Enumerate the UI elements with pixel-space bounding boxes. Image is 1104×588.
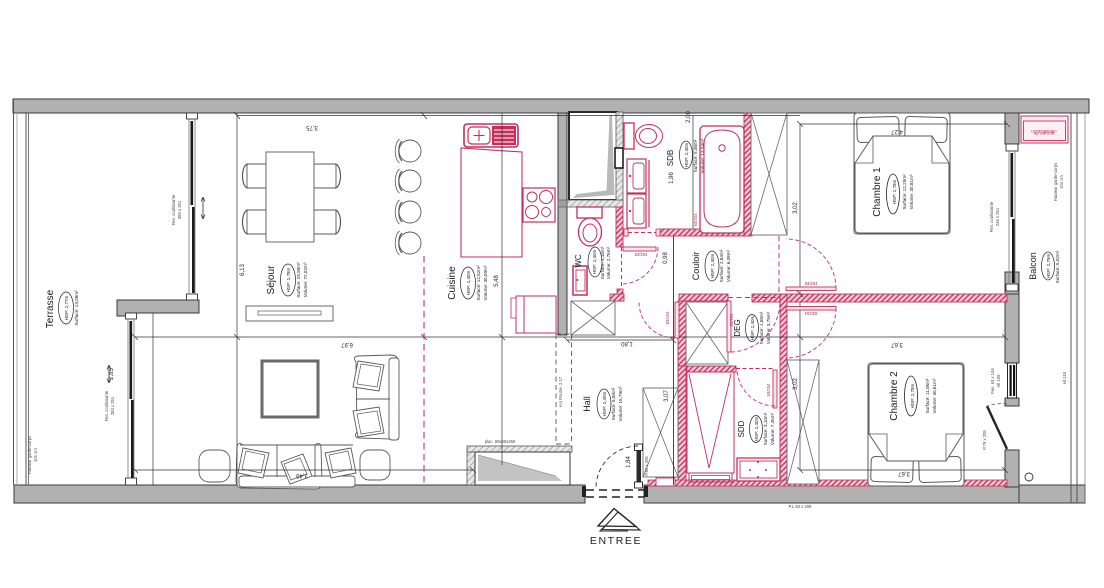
svg-text:P.79 x 205: P.79 x 205	[982, 430, 987, 450]
svg-text:83/204: 83/204	[805, 281, 818, 286]
svg-text:366 x 251: 366 x 251	[177, 200, 182, 219]
svg-text:Volume: 7,45m³: Volume: 7,45m³	[770, 412, 775, 445]
svg-text:WC: WC	[574, 254, 583, 268]
svg-text:HSP: 2,77m: HSP: 2,77m	[64, 295, 69, 320]
svg-text:Cuisine: Cuisine	[447, 266, 458, 300]
svg-text:ENTREE: ENTREE	[590, 535, 642, 547]
svg-text:2,00: 2,00	[686, 111, 692, 123]
svg-text:HSP: 2,40m: HSP: 2,40m	[466, 270, 471, 295]
svg-text:HSP: 2,40m: HSP: 2,40m	[710, 253, 715, 278]
svg-text:63/204: 63/204	[766, 383, 771, 396]
svg-text:All 105: All 105	[996, 374, 1001, 387]
svg-text:Hauteur garde-corps: Hauteur garde-corps	[27, 436, 32, 474]
svg-text:Surface: 25,90m²: Surface: 25,90m²	[296, 262, 301, 298]
svg-text:3,67: 3,67	[891, 341, 903, 347]
svg-text:Volume: 15,79m³: Volume: 15,79m³	[618, 386, 623, 421]
svg-text:Fen. coulissante: Fen. coulissante	[104, 390, 109, 421]
svg-text:104 cm: 104 cm	[1059, 175, 1064, 189]
svg-text:3,02: 3,02	[793, 202, 799, 214]
svg-text:DEG: DEG	[733, 319, 742, 336]
svg-text:4,27: 4,27	[891, 128, 903, 134]
svg-text:Volume: 2,76m³: Volume: 2,76m³	[606, 246, 611, 279]
svg-text:Balcon: Balcon	[1028, 252, 1038, 280]
svg-text:HSP: 2,79m: HSP: 2,79m	[1046, 253, 1051, 278]
svg-text:H.s Poutre. 2,17: H.s Poutre. 2,17	[558, 376, 563, 407]
svg-text:83/204: 83/204	[729, 313, 734, 326]
svg-text:Surface: 12,52m²: Surface: 12,52m²	[476, 265, 481, 301]
svg-text:Chambre 2: Chambre 2	[889, 371, 900, 421]
svg-text:3,75: 3,75	[306, 124, 318, 130]
svg-text:Volume: 6,08m³: Volume: 6,08m³	[726, 249, 731, 282]
svg-text:SDD: SDD	[737, 420, 746, 437]
svg-text:HSP: 2,40m: HSP: 2,40m	[592, 249, 597, 274]
svg-text:Volume: 13,04m³: Volume: 13,04m³	[700, 138, 705, 173]
svg-text:2,85: 2,85	[109, 368, 115, 380]
svg-text:groupe de: groupe de	[1033, 131, 1054, 136]
svg-text:83/204: 83/204	[804, 311, 817, 316]
svg-text:Surface: 3,10m²: Surface: 3,10m²	[763, 412, 768, 445]
svg-text:Volume: 30,09m³: Volume: 30,09m³	[483, 265, 488, 300]
svg-text:3,49: 3,49	[296, 472, 308, 478]
svg-text:6,13: 6,13	[240, 264, 246, 276]
svg-text:Surface: 1,15m²: Surface: 1,15m²	[600, 246, 605, 279]
svg-text:Surface: 11,06m²: Surface: 11,06m²	[925, 378, 930, 413]
svg-text:63/204: 63/204	[693, 213, 698, 226]
svg-text:6,97: 6,97	[341, 341, 353, 347]
svg-text:Hall: Hall	[582, 396, 592, 412]
svg-text:Séjour: Séjour	[266, 265, 277, 295]
svg-text:Surface: 13,06m²: Surface: 13,06m²	[74, 290, 79, 326]
svg-text:Chambre 1: Chambre 1	[872, 167, 883, 217]
svg-text:Surface: 5,02m²: Surface: 5,02m²	[1055, 250, 1060, 283]
svg-text:HSP: 2,78m: HSP: 2,78m	[286, 267, 291, 292]
svg-text:Volume: 30,61m³: Volume: 30,61m³	[932, 378, 937, 413]
svg-text:HSP: 2,40m: HSP: 2,40m	[754, 416, 759, 441]
svg-text:Surface: 2,84m²: Surface: 2,84m²	[719, 249, 724, 282]
svg-text:HSP: 2,40m: HSP: 2,40m	[750, 315, 755, 340]
svg-text:246 x 251: 246 x 251	[995, 207, 1000, 226]
svg-text:Terrasse: Terrasse	[45, 289, 56, 328]
svg-text:Fen. 63 x 146: Fen. 63 x 146	[990, 368, 995, 394]
svg-text:3,07: 3,07	[664, 390, 670, 402]
svg-text:Surface: 1,58m²: Surface: 1,58m²	[759, 311, 764, 344]
svg-text:5,48: 5,48	[494, 275, 500, 287]
svg-text:Volume: 72,02m³: Volume: 72,02m³	[303, 262, 308, 297]
svg-text:1,96: 1,96	[669, 172, 675, 184]
svg-text:101 cm: 101 cm	[33, 448, 38, 462]
svg-text:Volume: 3,79m³: Volume: 3,79m³	[766, 311, 771, 344]
svg-text:83/204: 83/204	[665, 311, 670, 324]
svg-text:SDB: SDB	[666, 150, 675, 166]
svg-text:Surface: 12,25m²: Surface: 12,25m²	[902, 174, 907, 210]
svg-text:Couloir: Couloir	[691, 252, 701, 281]
svg-text:63/204: 63/204	[635, 252, 648, 257]
svg-text:plac. 90x60x250: plac. 90x60x250	[485, 439, 516, 444]
svg-text:1,80: 1,80	[621, 340, 633, 346]
svg-text:P.L 83 x 206: P.L 83 x 206	[789, 504, 812, 509]
svg-text:1,84: 1,84	[626, 456, 632, 468]
svg-text:0,98: 0,98	[663, 252, 669, 264]
svg-text:283 x 251: 283 x 251	[110, 396, 115, 415]
svg-text:HSP: 2,40m: HSP: 2,40m	[602, 391, 607, 416]
svg-text:3,02: 3,02	[793, 378, 799, 390]
svg-text:All 115: All 115	[1062, 371, 1067, 384]
svg-text:HSP: 2,78m: HSP: 2,78m	[892, 179, 897, 204]
svg-text:Volume: 30,81m³: Volume: 30,81m³	[909, 174, 914, 209]
svg-text:HSP: 2,40m: HSP: 2,40m	[684, 142, 689, 167]
svg-text:3,67: 3,67	[898, 470, 910, 476]
svg-text:Hauteur garde-corps: Hauteur garde-corps	[1053, 163, 1058, 201]
svg-text:Fen. coulissante: Fen. coulissante	[171, 194, 176, 225]
svg-text:HSP: 2,78m: HSP: 2,78m	[910, 383, 915, 408]
svg-text:Fen. coulissante: Fen. coulissante	[989, 201, 994, 232]
svg-text:P.82 x 206: P.82 x 206	[644, 456, 649, 476]
svg-text:Surface: 5,46m²: Surface: 5,46m²	[693, 139, 698, 172]
svg-text:Surface: 6,58m²: Surface: 6,58m²	[611, 387, 616, 420]
